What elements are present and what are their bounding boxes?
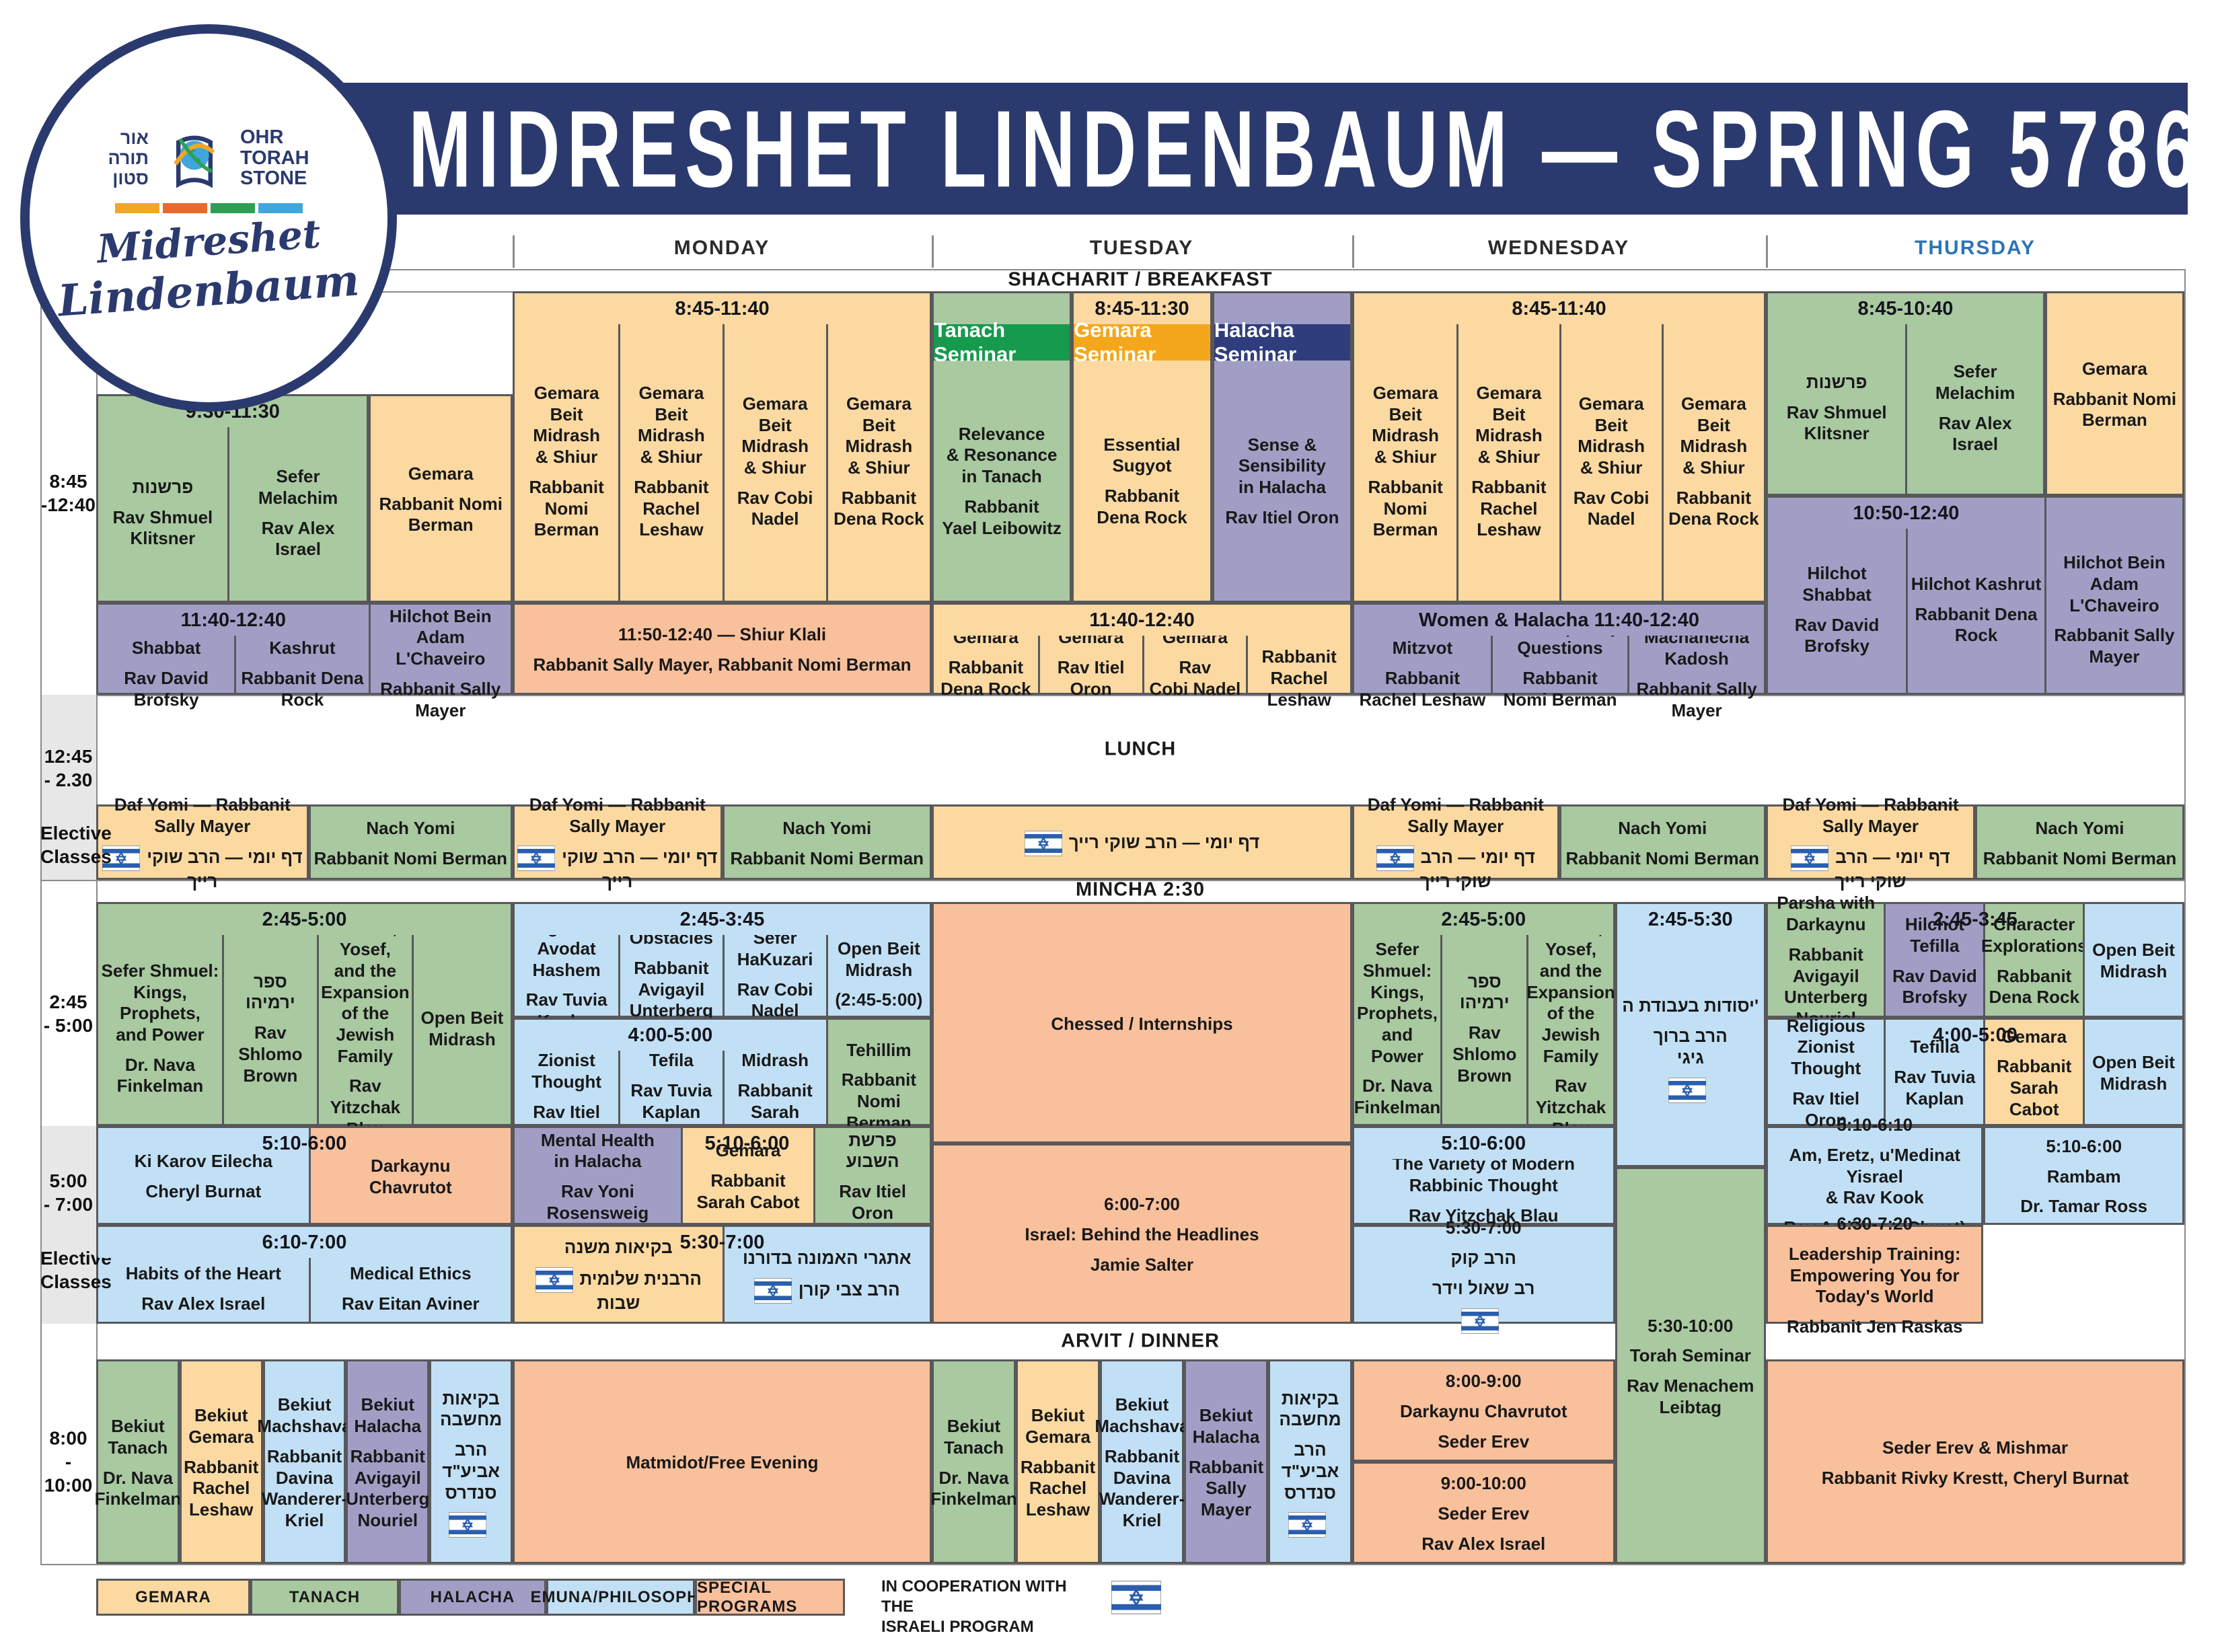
cell-text: Gemara Beit Midrash & ShiurRav Cobi Nade… bbox=[727, 326, 823, 598]
cell-line: The Variety of Modern Rabbinic Thought bbox=[1392, 1154, 1575, 1196]
schedule-cell-tue: בקיאות מחשבההרב אביע"ד סנדרס bbox=[1268, 1359, 1352, 1564]
cell-line: Chessed / Internships bbox=[1051, 1014, 1232, 1035]
cell-line: Rabbanit Nomi Berman bbox=[1566, 848, 1760, 870]
cell-text: Daf Yomi — Rabbanit Sally Mayerדף יומי —… bbox=[101, 812, 304, 875]
schedule-subcell: Nach YomiRabbanit Nomi Berman bbox=[1977, 806, 2182, 878]
cell-line: Rabbanit Sarah Cabot bbox=[696, 1170, 799, 1213]
cell-line: דף יומי — הרב שוקי רייך bbox=[1025, 831, 1260, 856]
cell-text: Medical EthicsRav Eitan Aviner bbox=[313, 1259, 508, 1319]
cell-line: Rav Shlomo Brown bbox=[227, 1022, 314, 1086]
elective-shade bbox=[42, 1126, 96, 1324]
schedule-cell-sun: Bekiut MachshavaRabbanit Davina Wanderer… bbox=[263, 1359, 346, 1564]
cell-line bbox=[1668, 1078, 1713, 1103]
schedule-cell-thu: Hilchot ShabbatRav David BrofskyHilchot … bbox=[1766, 496, 2184, 695]
schedule-subcell: Bekiut MachshavaRabbanit Davina Wanderer… bbox=[265, 1361, 344, 1562]
schedule-cell-mon: Gemara Beit Midrash & ShiurRabbanit Nomi… bbox=[513, 291, 932, 603]
cell-text: Relevance & Resonance in TanachRabbanit … bbox=[936, 365, 1067, 598]
schedule-cell-mon: 11:50-12:40 — Shiur KlaliRabbanit Sally … bbox=[513, 603, 932, 695]
schedule-cell-mon: Religious Zionist ThoughtRav Itiel OronT… bbox=[513, 1018, 932, 1126]
schedule-cell-thu: GemaraRabbanit Nomi Berman bbox=[2045, 291, 2184, 496]
schedule-cell-thu: Religious Zionist ThoughtRav Itiel OronT… bbox=[1766, 1018, 2184, 1126]
cell-line: Gemara Beit Midrash & Shiur bbox=[517, 383, 616, 468]
legend-label: HALACHA bbox=[431, 1588, 515, 1607]
cell-line: Dr. Nava Finkelman bbox=[95, 1468, 182, 1510]
cell-text: Progress in Avodat HashemRav Tuvia Kapla… bbox=[517, 936, 616, 1013]
cell-line: Rav Alex Israel bbox=[141, 1293, 265, 1315]
schedule-subcell: TehillimRabbanit Nomi Berman bbox=[826, 1020, 930, 1124]
cell-line: Rabbanit Dena Rock bbox=[1668, 488, 1759, 530]
israel-flag-icon bbox=[1461, 1309, 1499, 1329]
cell-line: Seder Erev bbox=[1438, 1431, 1529, 1453]
time-label: Elective Classes bbox=[40, 821, 96, 868]
cell-line: Bekiut Machshava bbox=[257, 1394, 351, 1437]
schedule-subcell: Gemara Beit Midrash & ShiurRav Cobi Nade… bbox=[723, 293, 826, 601]
band-header: 5:10-6:00 bbox=[1354, 1128, 1613, 1159]
cell-text: Hilchot ShabbatRav David Brofsky bbox=[101, 637, 231, 690]
cell-text: Hilchot ShabbatRav David Brofsky bbox=[1771, 530, 1903, 690]
cell-line: Medical Ethics bbox=[350, 1263, 472, 1285]
cell-text: GemaraRabbanit Rachel Leshaw bbox=[1251, 637, 1347, 690]
israel-flag-icon bbox=[1791, 847, 1828, 867]
israel-flag-icon bbox=[449, 1513, 486, 1534]
logo-top-row: אור תורה סטון OHR TORAH STONE bbox=[108, 120, 309, 196]
cell-line: Rav David Brofsky bbox=[1771, 615, 1903, 657]
schedule-cell-wed: יסודות בעבודת ה'הרב ברוך גיגי2:45-5:30 bbox=[1615, 902, 1766, 1167]
schedule-cell-tue: Sense & Sensibility in HalachaRav Itiel … bbox=[1212, 291, 1352, 603]
cell-line: Gemara Beit Midrash & Shiur bbox=[1357, 383, 1454, 468]
cell-line: Rav David Brofsky bbox=[101, 668, 231, 710]
cell-line: פרשנות bbox=[133, 477, 194, 498]
time-label: 8:45 -12:40 bbox=[40, 470, 96, 517]
schedule-cell-tue: Relevance & Resonance in TanachRabbanit … bbox=[932, 291, 1072, 603]
schedule-cell-sun: Bekiut TanachDr. Nava Finkelman bbox=[96, 1359, 180, 1564]
cell-line: ספר ירמיהו bbox=[227, 971, 314, 1014]
cell-line: 11:50-12:40 — Shiur Klali bbox=[618, 624, 826, 646]
schedule-cell-tue: דף יומי — הרב שוקי רייך bbox=[932, 804, 1352, 880]
band-header: 6:10-7:00 bbox=[98, 1227, 511, 1258]
grid-line bbox=[2184, 269, 2186, 1564]
cell-line: Daf Yomi — Rabbanit Sally Mayer bbox=[1357, 794, 1555, 837]
schedule-cell-thu: פרשנותRav Shmuel KlitsnerSefer MelachimR… bbox=[1766, 291, 2045, 496]
cell-line: Rabbanit Dena Rock bbox=[239, 668, 365, 710]
cell-line: Rav Alex Israel bbox=[1421, 1534, 1545, 1555]
schedule-cell-wed: Sefer Shmuel: Kings, Prophets, and Power… bbox=[1352, 902, 1615, 1126]
schedule-cell-tue: Essential SugyotRabbanit Dena Rock8:45-1… bbox=[1072, 291, 1212, 603]
cell-line: דף יומי — הרב שוקי רייך bbox=[517, 846, 718, 893]
schedule-subcell: Bekiut HalachaRabbanit Avigayil Unterber… bbox=[348, 1361, 427, 1562]
schedule-cell-mon: בקיאות משנההרבנית שלומית שבותאתגרי האמונ… bbox=[513, 1225, 932, 1324]
cell-line: 5:30-10:00 bbox=[1648, 1316, 1733, 1337]
schedule-subcell: Seder Erev & MishmarRabbanit Rivky Krest… bbox=[1768, 1361, 2182, 1562]
band-header: 5:10-6:00 bbox=[681, 1128, 813, 1159]
cell-text: Sefer HaKuzariRav Cobi Nadel bbox=[727, 936, 823, 1013]
cell-line: Sefer Shmuel: Kings, Prophets, and Power bbox=[1357, 939, 1438, 1067]
cell-line: Rav Cobi Nadel bbox=[737, 979, 813, 1022]
cell-line: Rav Cobi Nadel bbox=[1574, 488, 1650, 530]
cell-text: Bekiut TanachDr. Nava Finkelman bbox=[101, 1367, 175, 1559]
cell-line: Bekiut Tanach bbox=[944, 1416, 1004, 1458]
time-label: 2:45 - 5:00 bbox=[40, 990, 96, 1037]
time-label: 12:45 - 2.30 bbox=[40, 745, 96, 792]
cell-line: הרב קוק bbox=[1451, 1248, 1517, 1269]
cell-line: Rabbanit Dena Rock bbox=[1097, 486, 1187, 528]
cell-line: Rabbanit Sally Mayer bbox=[1189, 1457, 1263, 1521]
schedule-cell-wed: Nach YomiRabbanit Nomi Berman bbox=[1559, 804, 1767, 880]
schedule-subcell: Sefer Shmuel: Kings, Prophets, and Power… bbox=[98, 904, 222, 1124]
cell-line: Bekiut Machshava bbox=[1095, 1394, 1189, 1437]
cell-text: Nach YomiRabbanit Nomi Berman bbox=[1564, 812, 1762, 875]
cell-line: Rav Cobi Nadel bbox=[1149, 657, 1241, 700]
schedule-subcell: GemaraRabbanit Nomi Berman bbox=[371, 396, 511, 601]
grid-line bbox=[40, 1564, 2184, 1565]
cell-line: Gemara Beit Midrash & Shiur bbox=[727, 393, 823, 479]
day-separator bbox=[932, 235, 934, 268]
cell-line: 5:30-7:00 bbox=[1446, 1217, 1522, 1239]
cell-line: Rabbanit Rachel Leshaw bbox=[1021, 1457, 1095, 1521]
bar-blue bbox=[258, 203, 303, 213]
schedule-subcell: 6:30-7:20Leadership Training: Empowering… bbox=[1768, 1227, 1981, 1322]
schedule-subcell: Nach YomiRabbanit Nomi Berman bbox=[1561, 806, 1765, 878]
cell-line: Daf Yomi — Rabbanit Sally Mayer bbox=[1771, 794, 1970, 837]
schedule-cell-sun: Hilchot ShabbatRav David BrofskyHilchot … bbox=[96, 603, 513, 695]
schedule-cell-wed: Gemara Beit Midrash & ShiurRabbanit Nomi… bbox=[1352, 291, 1766, 603]
cell-line: Rabbanit Dena Rock bbox=[940, 657, 1031, 700]
cell-line: Rabbanit Sally Mayer bbox=[2049, 625, 2180, 667]
seminar-strip: Halacha Seminar bbox=[1214, 324, 1350, 361]
cell-line: Rav Tuvia Kaplan bbox=[630, 1080, 712, 1123]
globe-book-icon bbox=[158, 120, 231, 196]
cell-line: Nach Yomi bbox=[366, 818, 455, 839]
legend-item-special-programs: SPECIAL PROGRAMS bbox=[695, 1579, 845, 1616]
schedule-subcell: פרשת השבועRav Itiel Oron bbox=[813, 1128, 930, 1223]
cell-text: Sefer MelachimRav Alex Israel bbox=[1910, 326, 2040, 491]
cell-line: הרב אביע"ד סנדרס bbox=[1273, 1439, 1347, 1503]
cell-text: 6:30-7:20Leadership Training: Empowering… bbox=[1771, 1232, 1978, 1319]
cell-text: Seder Erev & MishmarRabbanit Rivky Krest… bbox=[1771, 1367, 2180, 1559]
cell-line: Rabbanit Jen Raskas bbox=[1787, 1316, 1963, 1338]
bar-green bbox=[211, 203, 255, 213]
schedule-cell-wed: 8:00-9:00Darkaynu ChavrutotSeder Erev bbox=[1352, 1359, 1615, 1462]
schedule-subcell: Gemara Beit Midrash & ShiurRabbanit Nomi… bbox=[515, 293, 618, 601]
cell-line: Rabbanit Sally Mayer bbox=[1632, 679, 1761, 721]
cell-line: פרשת השבוע bbox=[846, 1130, 899, 1172]
cell-text: Gemara Beit Midrash & ShiurRabbanit Rach… bbox=[1461, 326, 1556, 598]
cell-line bbox=[1461, 1308, 1506, 1334]
schedule-cell-thu: Parsha with DarkaynuRabbanit Avigayil Un… bbox=[1766, 902, 2184, 1018]
schedule-cell-sun: Bekiut HalachaRabbanit Avigayil Unterber… bbox=[346, 1359, 429, 1564]
cell-line bbox=[1288, 1512, 1333, 1538]
cell-text: פרשנותRav Shmuel Klitsner bbox=[101, 428, 225, 598]
cell-line: Rambam bbox=[2047, 1166, 2121, 1188]
schedule-subcell: Nach YomiRabbanit Nomi Berman bbox=[311, 806, 511, 878]
schedule-subcell: 5:10-6:00RambamDr. Tamar Ross bbox=[1985, 1128, 2182, 1223]
cell-text: The Variety of Modern Rabbinic ThoughtRa… bbox=[1357, 1160, 1611, 1220]
day-label-tue: TUESDAY bbox=[1090, 237, 1194, 260]
cell-line: Rav Menachem Leibtag bbox=[1620, 1376, 1761, 1418]
cell-text: ספר ירמיהוRav Shlomo Brown bbox=[227, 936, 314, 1121]
cell-line: רב שאול וידר bbox=[1432, 1278, 1534, 1300]
cell-text: Bekiut TanachDr. Nava Finkelman bbox=[936, 1367, 1011, 1559]
schedule-subcell: בקיאות מחשבההרב אביע"ד סנדרס bbox=[1270, 1361, 1350, 1562]
cell-text: Sense & Sensibility in HalachaRav Itiel … bbox=[1217, 365, 1347, 598]
cell-line: יסודות בעבודת ה' bbox=[1622, 996, 1759, 1017]
cell-line: הרב ברוך גיגי bbox=[1654, 1026, 1728, 1068]
cell-text: Bekiut MachshavaRabbanit Davina Wanderer… bbox=[268, 1367, 342, 1559]
schedule-cell-mon: Matmidot/Free Evening bbox=[513, 1359, 932, 1564]
cell-text: GemaraRabbanit Dena Rock bbox=[936, 637, 1035, 690]
schedule-subcell: Yaakov, Yosef, and the Expansion of the … bbox=[317, 904, 412, 1124]
schedule-cell-tue: GemaraRabbanit Dena RockGemaraRav Itiel … bbox=[932, 603, 1352, 695]
cell-text: Sefer Shmuel: Kings, Prophets, and Power… bbox=[101, 936, 219, 1121]
band-header: 4:00-5:00 bbox=[515, 1020, 826, 1051]
cell-line: Rav Eitan Aviner bbox=[342, 1293, 480, 1315]
cell-line: Rabbanit Nomi Berman bbox=[1983, 848, 2177, 870]
schedule-cell-tue: Bekiut TanachDr. Nava Finkelman bbox=[932, 1359, 1016, 1564]
band-header: Women & Halacha 11:40-12:40 bbox=[1354, 605, 1764, 636]
band-header: 2:45-3:45 bbox=[515, 904, 930, 935]
cell-text: Yaakov, Yosef, and the Expansion of the … bbox=[1531, 936, 1610, 1121]
cell-text: 5:30-7:00הרב קוקרב שאול וידר bbox=[1357, 1232, 1611, 1319]
schedule-cell-tue: Bekiut GemaraRabbanit Rachel Leshaw bbox=[1016, 1359, 1100, 1564]
schedule-subcell: Chessed / Internships bbox=[934, 904, 1350, 1141]
cell-text: Bekiut HalachaRabbanit Sally Mayer bbox=[1189, 1367, 1263, 1559]
logo-org-name: OHR TORAH STONE bbox=[240, 127, 309, 188]
cell-text: 5:10-6:10Am, Eretz, u'Medinat Yisrael & … bbox=[1771, 1133, 1978, 1220]
cell-line: Sefer Shmuel: Kings, Prophets, and Power bbox=[101, 961, 219, 1046]
cell-text: 5:30-10:00Torah SeminarRav Menachem Leib… bbox=[1620, 1174, 1761, 1559]
schedule-cell-sun: Habits of the HeartRav Alex IsraelMedica… bbox=[96, 1225, 513, 1324]
cell-line: Nach Yomi bbox=[1618, 818, 1707, 839]
cell-line: Open Beit Midrash bbox=[2092, 940, 2175, 982]
cell-line: Gemara Beit Midrash & Shiur bbox=[831, 393, 927, 479]
schedule-cell-sun: Ki Karov EilechaCheryl BurnatDarkaynu Ch… bbox=[96, 1126, 513, 1225]
schedule-subcell: 5:30-7:00הרב קוקרב שאול וידר bbox=[1354, 1227, 1613, 1322]
cell-text: בקיאות מחשבההרב אביע"ד סנדרס bbox=[1273, 1367, 1347, 1559]
cell-line: 8:00-9:00 bbox=[1446, 1371, 1522, 1392]
schedule-subcell: Bekiut GemaraRabbanit Rachel Leshaw bbox=[182, 1361, 261, 1562]
band-header: 5:10-6:00 bbox=[98, 1128, 511, 1159]
cell-line: Rav David Brofsky bbox=[1892, 966, 1977, 1008]
time-label: 8:00 - 10:00 bbox=[40, 1427, 96, 1497]
cell-text: Yaakov, Yosef, and the Expansion of the … bbox=[322, 936, 409, 1121]
cell-text: Darchei MidrashRabbanit Sarah Cabot bbox=[727, 1052, 823, 1121]
cell-line: Rabbanit Rachel Leshaw bbox=[184, 1457, 258, 1521]
cell-line: Jamie Salter bbox=[1090, 1254, 1193, 1276]
schedule-cell-sun: Sefer Shmuel: Kings, Prophets, and Power… bbox=[96, 902, 513, 1126]
cell-line: Yaakov, Yosef, and the Expansion of the … bbox=[1526, 917, 1615, 1067]
cell-line: Rabbanit Nomi Berman bbox=[831, 1069, 927, 1133]
day-separator bbox=[1766, 235, 1768, 268]
band-header: 2:45-3:45 bbox=[1768, 904, 2182, 935]
cell-line: Hilchot Shabbat bbox=[1771, 563, 1903, 605]
cell-line: Cheryl Burnat bbox=[145, 1181, 261, 1203]
cell-text: Hilchot Bein Adam L'ChaveiroRabbanit Sal… bbox=[373, 637, 508, 690]
logo-color-bars bbox=[115, 203, 303, 213]
cell-text: Gemara Beit Midrash & ShiurRav Cobi Nade… bbox=[1564, 326, 1659, 598]
schedule-cell-wed: The Variety of Modern Rabbinic ThoughtRa… bbox=[1352, 1126, 1615, 1225]
cell-line: Yaakov, Yosef, and the Expansion of the … bbox=[321, 917, 409, 1067]
cell-line: Hilchot Bein Adam L'Chaveiro bbox=[373, 606, 508, 670]
bar-yellow bbox=[115, 203, 159, 213]
cell-text: 8:00-9:00Darkaynu ChavrutotSeder Erev bbox=[1357, 1367, 1611, 1457]
cell-text: Sefer Shmuel: Kings, Prophets, and Power… bbox=[1357, 936, 1438, 1121]
cell-line: Rav Alex Israel bbox=[262, 518, 335, 560]
band-header: 8:45-10:40 bbox=[1768, 293, 2043, 324]
seminar-strip: Gemara Seminar bbox=[1074, 324, 1210, 361]
schedule-cell-wed: Women & MitzvotRabbanit Rachel LeshawCon… bbox=[1352, 603, 1766, 695]
band-header: 8:45-11:40 bbox=[515, 293, 930, 324]
cell-line: Relevance & Resonance in Tanach bbox=[947, 424, 1058, 488]
schedule-subcell: ספר ירמיהוRav Shlomo Brown bbox=[1440, 904, 1526, 1124]
schedule-cell-sun: Daf Yomi — Rabbanit Sally Mayerדף יומי —… bbox=[96, 804, 309, 880]
cell-line: בקיאות מחשבה bbox=[440, 1388, 502, 1431]
cell-text: Daf Yomi — Rabbanit Sally Mayerדף יומי —… bbox=[1771, 812, 1970, 875]
cell-text: Gemara Beit Midrash & ShiurRabbanit Nomi… bbox=[517, 326, 616, 598]
cell-line: Sefer Melachim bbox=[1935, 361, 2015, 404]
israel-flag-icon bbox=[1668, 1078, 1706, 1098]
israel-flag-icon bbox=[535, 1269, 573, 1289]
day-separator bbox=[513, 235, 515, 268]
time-label: 5:00 - 7:00 bbox=[40, 1169, 96, 1216]
cell-line: דף יומי — הרב שוקי רייך bbox=[101, 846, 304, 893]
cell-line: Darkaynu Chavrutot bbox=[1400, 1401, 1567, 1423]
schedule-cell-wed: 5:30-7:00הרב קוקרב שאול וידר bbox=[1352, 1225, 1615, 1324]
schedule-subcell: Gemara Beit Midrash & ShiurRav Cobi Nade… bbox=[1559, 293, 1662, 601]
cell-line: Tehillim bbox=[846, 1040, 911, 1061]
cell-text: Open Beit Midrash bbox=[416, 936, 508, 1121]
day-label-mon: MONDAY bbox=[674, 237, 770, 260]
schedule-subcell: יסודות בעבודת ה'הרב ברוך גיגי bbox=[1617, 904, 1764, 1165]
cell-line: 6:30-7:20 bbox=[1837, 1213, 1913, 1235]
cell-line: Am, Eretz, u'Medinat Yisrael & Rav Kook bbox=[1771, 1145, 1978, 1209]
cell-line: Rabbanit Nomi Berman bbox=[1357, 477, 1454, 541]
schedule-subcell: 8:00-9:00Darkaynu ChavrutotSeder Erev bbox=[1354, 1361, 1613, 1460]
cell-text: Gemara Beit Midrash & ShiurRabbanit Nomi… bbox=[1357, 326, 1454, 598]
schedule-cell-sun: GemaraRabbanit Nomi Berman bbox=[369, 394, 513, 603]
cell-text: Religious Zionist ThoughtRav Itiel Oron bbox=[517, 1052, 616, 1121]
section-label-mincha: MINCHA 2:30 bbox=[1076, 879, 1205, 901]
cell-text: פרשנותRav Shmuel Klitsner bbox=[1771, 326, 1902, 491]
cell-line: Seder Erev & Mishmar bbox=[1882, 1437, 2068, 1459]
cell-line: Rav Tuvia Kaplan bbox=[1894, 1067, 1975, 1109]
schedule-cell-thu: Nach YomiRabbanit Nomi Berman bbox=[1975, 804, 2184, 880]
cell-line: Matmidot/Free Evening bbox=[626, 1452, 818, 1474]
schedule-cell-tue: 6:00-7:00Israel: Behind the HeadlinesJam… bbox=[932, 1143, 1352, 1324]
band-header: 2:45-5:30 bbox=[1617, 904, 1764, 935]
cell-line: Rabbanit Sally Mayer bbox=[380, 679, 501, 721]
ohr-torah-stone-logo: אור תורה סטון OHR TORAH STONE Midreshet … bbox=[20, 24, 397, 412]
cell-text: TefilaRav Tuvia Kaplan bbox=[623, 1052, 719, 1121]
schedule-subcell: Gemara Beit Midrash & ShiurRabbanit Rach… bbox=[1456, 293, 1559, 601]
schedule-subcell: Bekiut TanachDr. Nava Finkelman bbox=[98, 1361, 178, 1562]
cell-line: Rabbanit Rivky Krestt, Cheryl Burnat bbox=[1822, 1468, 2129, 1489]
cell-text: Nach YomiRabbanit Nomi Berman bbox=[1980, 812, 2180, 875]
band-header: 2:45-5:00 bbox=[1354, 904, 1613, 935]
legend-item-gemara: GEMARA bbox=[96, 1579, 250, 1616]
cell-line: Rabbanit Avigayil Unterberg Nouriel bbox=[346, 1446, 429, 1532]
cell-line: Leadership Training: Empowering You for … bbox=[1789, 1244, 1961, 1308]
band-header: 2:45-5:00 bbox=[98, 904, 511, 935]
grid-line bbox=[40, 269, 42, 1564]
cell-line: בקיאות מחשבה bbox=[1279, 1388, 1341, 1431]
schedule-cell-mon: Progress in Avodat HashemRav Tuvia Kapla… bbox=[513, 902, 932, 1018]
cell-line: Rabbanit Nomi Berman bbox=[314, 848, 508, 870]
cell-line: Bekiut Gemara bbox=[1025, 1405, 1090, 1448]
cell-text: Hilchot KashrutRabbanit Dena Rock bbox=[1911, 530, 2042, 690]
cell-line: Dr. Nava Finkelman bbox=[117, 1055, 204, 1097]
cell-line: Open Beit Midrash bbox=[2092, 1052, 2175, 1094]
cell-line: Rabbanit Rachel Leshaw bbox=[623, 477, 719, 541]
cell-text: Sefer MelachimRav Alex Israel bbox=[232, 428, 365, 598]
cell-line: Sefer Melachim bbox=[258, 466, 338, 509]
schedule-subcell: בקיאות מחשבההרב אביע"ד סנדרס bbox=[431, 1361, 511, 1562]
schedule-cell-thu: 5:10-6:10Am, Eretz, u'Medinat Yisrael & … bbox=[1766, 1126, 1983, 1225]
schedule-subcell: 5:30-10:00Torah SeminarRav Menachem Leib… bbox=[1617, 1169, 1764, 1562]
schedule-cell-wed: Daf Yomi — Rabbanit Sally Mayerדף יומי —… bbox=[1352, 804, 1559, 880]
cell-text: Mental Health in HalachaRav Yoni Rosensw… bbox=[517, 1133, 678, 1220]
cell-line: Open Beit Midrash bbox=[838, 938, 920, 981]
schedule-subcell: Open Beit Midrash bbox=[412, 904, 511, 1124]
cell-text: Habits of the HeartRav Alex Israel bbox=[101, 1259, 306, 1319]
cell-line: Open Beit Midrash bbox=[421, 1008, 504, 1050]
cell-line: Rav Cobi Nadel bbox=[737, 488, 813, 530]
schedule-subcell: 11:50-12:40 — Shiur KlaliRabbanit Sally … bbox=[515, 605, 930, 693]
cell-text: בקיאות מחשבההרב אביע"ד סנדרס bbox=[434, 1367, 508, 1559]
cell-text: Gemara Beit Midrash & ShiurRabbanit Dena… bbox=[831, 326, 927, 598]
cell-line: Rav Itiel Oron bbox=[1225, 507, 1339, 529]
cell-line: ספר ירמיהו bbox=[1445, 971, 1524, 1014]
cell-line: Nach Yomi bbox=[782, 818, 871, 839]
schedule-cell-thu: 6:30-7:20Leadership Training: Empowering… bbox=[1766, 1225, 1983, 1324]
section-label-lunch: LUNCH bbox=[1105, 739, 1177, 761]
cell-line: Rabbanit Rachel Leshaw bbox=[1359, 668, 1485, 710]
schedule-subcell: GemaraRabbanit Nomi Berman bbox=[2047, 293, 2182, 494]
cell-text: Open Beit Midrash(2:45-5:00) bbox=[831, 936, 927, 1013]
band-header: 8:45-11:40 bbox=[1354, 293, 1764, 324]
schedule-cell-wed: 9:00-10:00Seder ErevRav Alex Israel bbox=[1352, 1462, 1615, 1564]
schedule-cell-mon: Nach YomiRabbanit Nomi Berman bbox=[723, 804, 932, 880]
cell-text: פרשת השבועRav Itiel Oron bbox=[818, 1133, 927, 1220]
israel-flag-icon bbox=[1376, 847, 1414, 867]
schedule-cell-tue: Chessed / Internships bbox=[932, 902, 1352, 1143]
cell-text: GemaraRav Cobi Nadel bbox=[1147, 637, 1244, 690]
cell-line: Rabbanit Nomi Berman bbox=[1503, 668, 1617, 710]
cell-text: דף יומי — הרב שוקי רייך bbox=[936, 812, 1347, 875]
schedule-cell-thu: Daf Yomi — Rabbanit Sally Mayerדף יומי —… bbox=[1766, 804, 1975, 880]
schedule-subcell: Yaakov, Yosef, and the Expansion of the … bbox=[1526, 904, 1613, 1124]
cell-line: Daf Yomi — Rabbanit Sally Mayer bbox=[101, 794, 304, 837]
schedule-subcell: Matmidot/Free Evening bbox=[515, 1361, 930, 1562]
cell-line: Rav Shlomo Brown bbox=[1445, 1022, 1524, 1086]
cell-line: Rabbanit Nomi Berman bbox=[2053, 389, 2176, 431]
cell-text: Bekiut HalachaRabbanit Avigayil Unterber… bbox=[350, 1367, 424, 1559]
cell-text: Hilchot Bein Adam L'ChaveiroRabbanit Sal… bbox=[2049, 530, 2180, 690]
cell-line: Tefila bbox=[649, 1050, 694, 1072]
schedule-subcell: 9:00-10:00Seder ErevRav Alex Israel bbox=[1354, 1464, 1613, 1562]
logo-hebrew-text: אור תורה סטון bbox=[108, 128, 149, 189]
cell-line: Mental Health in Halacha bbox=[541, 1130, 655, 1172]
title-banner: MIDRESHET LINDENBAUM — SPRING 5786 bbox=[283, 83, 2188, 215]
band-header: 11:40-12:40 bbox=[934, 605, 1350, 636]
cell-line: Dr. Nava Finkelman bbox=[930, 1468, 1017, 1510]
day-label-thu: THURSDAY bbox=[1915, 237, 2036, 260]
schedule-subcell: 5:10-6:10Am, Eretz, u'Medinat Yisrael & … bbox=[1768, 1128, 1981, 1223]
schedule-subcell: Mental Health in HalachaRav Yoni Rosensw… bbox=[515, 1128, 681, 1223]
cell-line: Rav Itiel Oron bbox=[1058, 657, 1125, 700]
schedule-cell-sun: Bekiut GemaraRabbanit Rachel Leshaw bbox=[180, 1359, 263, 1564]
cell-text: Chessed / Internships bbox=[936, 909, 1347, 1139]
cell-line: Rabbanit Davina Wanderer- Kriel bbox=[262, 1446, 348, 1532]
